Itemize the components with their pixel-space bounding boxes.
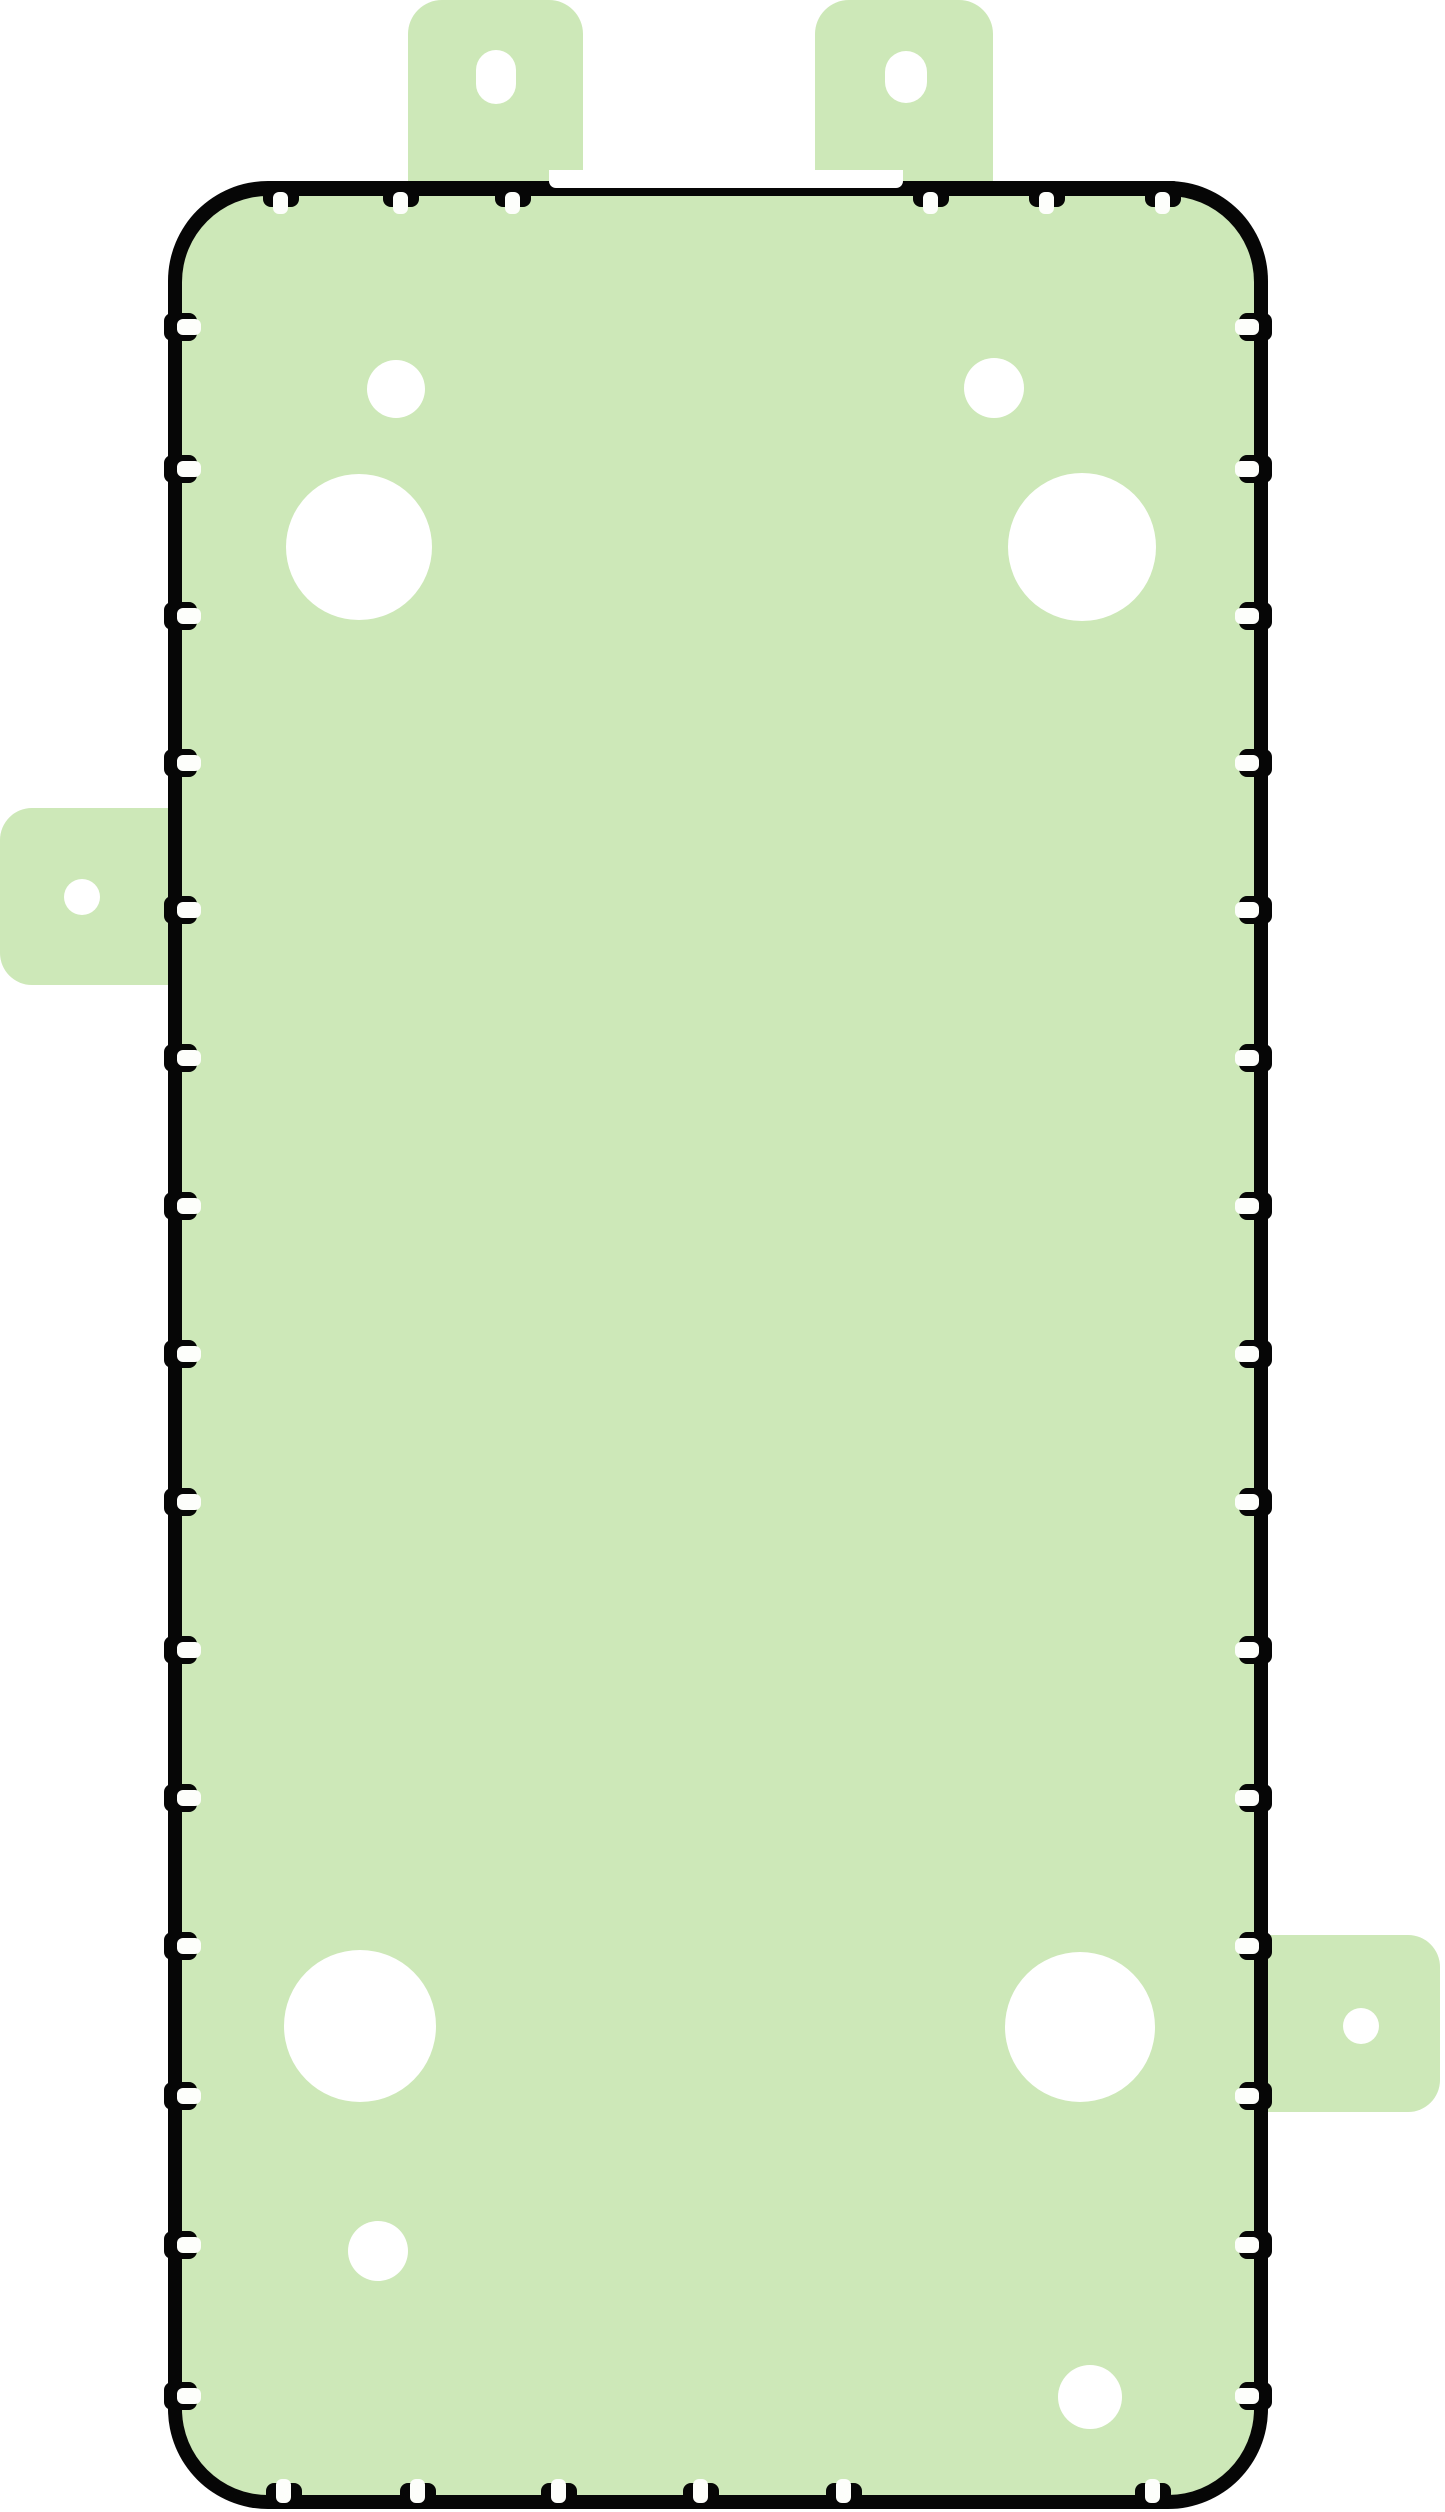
tick-slot-left-4 (177, 902, 201, 918)
tick-slot-left-1 (177, 461, 201, 477)
tick-slot-left-8 (177, 1494, 201, 1510)
tick-slot-right-8 (1235, 1494, 1259, 1510)
tick-slot-right-4 (1235, 902, 1259, 918)
tick-slot-left-13 (177, 2237, 201, 2253)
tick-slot-left-2 (177, 608, 201, 624)
tick-slot-right-14 (1235, 2388, 1259, 2404)
tick-slot-right-3 (1235, 755, 1259, 771)
tick-slot-right-11 (1235, 1938, 1259, 1954)
tick-slot-top-0 (273, 192, 288, 214)
tick-slot-bottom-1 (410, 2479, 425, 2503)
tick-slot-left-14 (177, 2388, 201, 2404)
tick-slot-right-6 (1235, 1198, 1259, 1214)
tick-slot-left-0 (177, 319, 201, 335)
phone-adhesive-diagram (0, 0, 1445, 2512)
tick-slot-right-13 (1235, 2237, 1259, 2253)
tick-slot-top-1 (393, 192, 408, 214)
tick-slot-top-3 (923, 192, 938, 214)
tick-slot-left-6 (177, 1198, 201, 1214)
tick-slot-right-0 (1235, 319, 1259, 335)
tick-slot-left-9 (177, 1642, 201, 1658)
tick-slot-right-2 (1235, 608, 1259, 624)
cutout-small-bottom-left (348, 2221, 408, 2281)
pull-tab-top-right-hole (885, 51, 927, 103)
tick-slot-bottom-4 (836, 2479, 851, 2503)
tick-slot-left-10 (177, 1790, 201, 1806)
tick-slot-bottom-0 (276, 2479, 291, 2503)
cutout-small-top-right (964, 358, 1024, 418)
tick-slot-left-11 (177, 1938, 201, 1954)
pull-tab-left-hole (64, 879, 100, 915)
top-notch-cutout (549, 170, 903, 188)
cutout-small-top-left (367, 360, 425, 418)
pull-tab-top-left-hole (476, 50, 516, 104)
cutout-large-top-left (286, 474, 432, 620)
cutout-large-bottom-right (1005, 1952, 1155, 2102)
cutout-small-bottom-right (1058, 2365, 1122, 2429)
tick-slot-top-2 (505, 192, 520, 214)
tick-slot-right-10 (1235, 1790, 1259, 1806)
pull-tab-right-hole (1343, 2008, 1379, 2044)
tick-slot-right-12 (1235, 2088, 1259, 2104)
tick-slot-left-12 (177, 2088, 201, 2104)
tick-slot-right-9 (1235, 1642, 1259, 1658)
tick-slot-right-5 (1235, 1050, 1259, 1066)
cutout-large-top-right (1008, 473, 1156, 621)
cutout-large-bottom-left (284, 1950, 436, 2102)
tick-slot-bottom-3 (693, 2479, 708, 2503)
tick-slot-bottom-5 (1145, 2479, 1160, 2503)
tick-slot-right-7 (1235, 1346, 1259, 1362)
tick-slot-top-5 (1155, 192, 1170, 214)
tick-slot-left-5 (177, 1050, 201, 1066)
tick-slot-bottom-2 (551, 2479, 566, 2503)
tick-slot-top-4 (1039, 192, 1054, 214)
tick-slot-left-7 (177, 1346, 201, 1362)
tick-slot-left-3 (177, 755, 201, 771)
tick-slot-right-1 (1235, 461, 1259, 477)
